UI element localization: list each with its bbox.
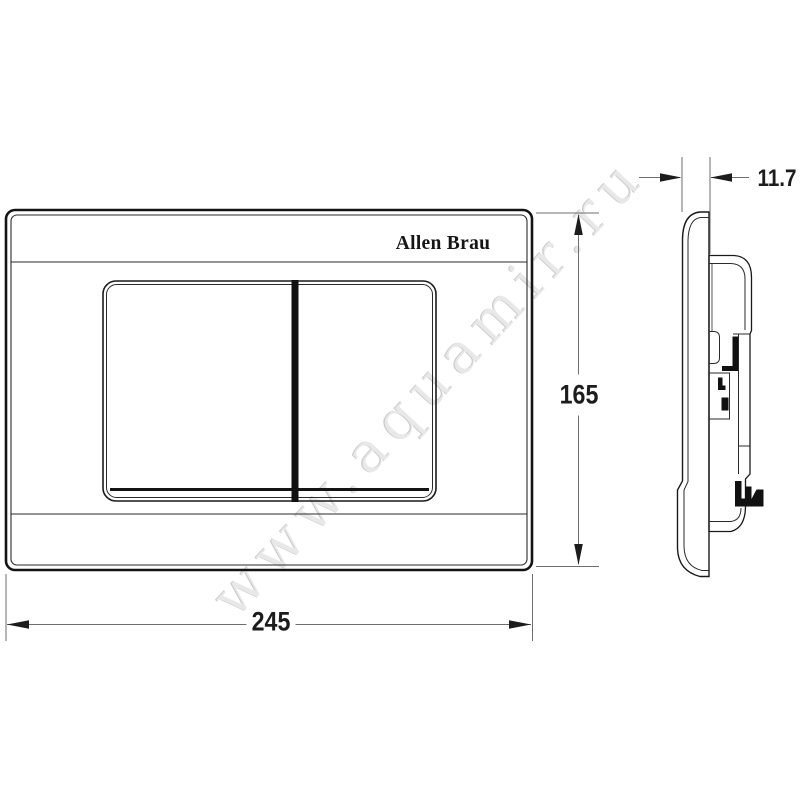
mechanism-black-clips	[718, 337, 764, 507]
button-divider-bar	[292, 280, 299, 502]
plate-outer-edge	[6, 210, 532, 570]
mechanism-housing-inner	[709, 264, 745, 331]
front-view	[6, 210, 532, 570]
arrow-toward-front-face	[660, 173, 682, 182]
dimension-lines	[6, 157, 749, 641]
side-view	[678, 212, 764, 577]
plate-profile-outer	[678, 212, 710, 577]
button-recess-inner	[107, 285, 433, 498]
arrow-down	[574, 544, 583, 565]
arrow-left	[7, 620, 29, 629]
flush-plate-technical-drawing: www.aquamir.ru	[0, 0, 800, 800]
plate-inner-edge	[11, 215, 527, 565]
arrow-toward-back-face	[711, 173, 733, 182]
drawing-linework	[0, 0, 800, 800]
spring-housing-bump	[709, 332, 720, 364]
latch-black-block	[722, 398, 729, 411]
plate-profile-inner	[684, 218, 709, 571]
mechanism-bottom-inner	[709, 508, 741, 522]
upper-clip-arm	[722, 366, 738, 371]
button-recess-outer	[103, 281, 436, 501]
bottom-hook-clip	[735, 481, 764, 507]
latch-black-detail	[718, 378, 726, 391]
dimension-arrows	[7, 173, 732, 629]
arrow-right	[509, 620, 531, 629]
upper-clip-bar	[733, 337, 739, 369]
arrow-up	[574, 214, 583, 235]
